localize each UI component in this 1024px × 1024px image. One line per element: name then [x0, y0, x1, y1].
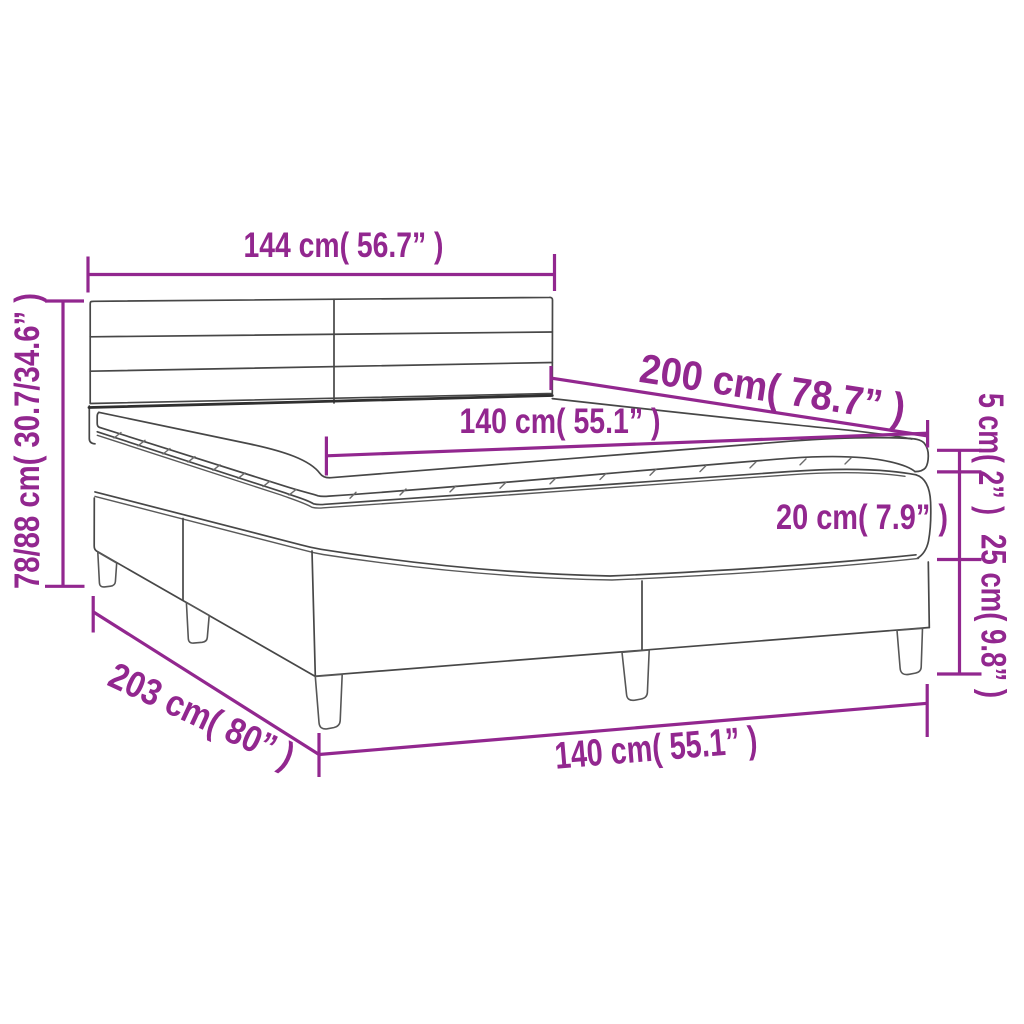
svg-text:144 cm( 56.7” ): 144 cm( 56.7” ) — [244, 226, 444, 265]
svg-text:140 cm( 55.1” ): 140 cm( 55.1” ) — [460, 402, 661, 441]
svg-text:78/88 cm( 30.7/34.6” ): 78/88 cm( 30.7/34.6” ) — [8, 293, 47, 589]
svg-text:5 cm( 2” ): 5 cm( 2” ) — [971, 393, 1010, 515]
svg-text:25 cm( 9.8” ): 25 cm( 9.8” ) — [974, 534, 1013, 698]
svg-text:20 cm( 7.9” ): 20 cm( 7.9” ) — [776, 498, 948, 537]
